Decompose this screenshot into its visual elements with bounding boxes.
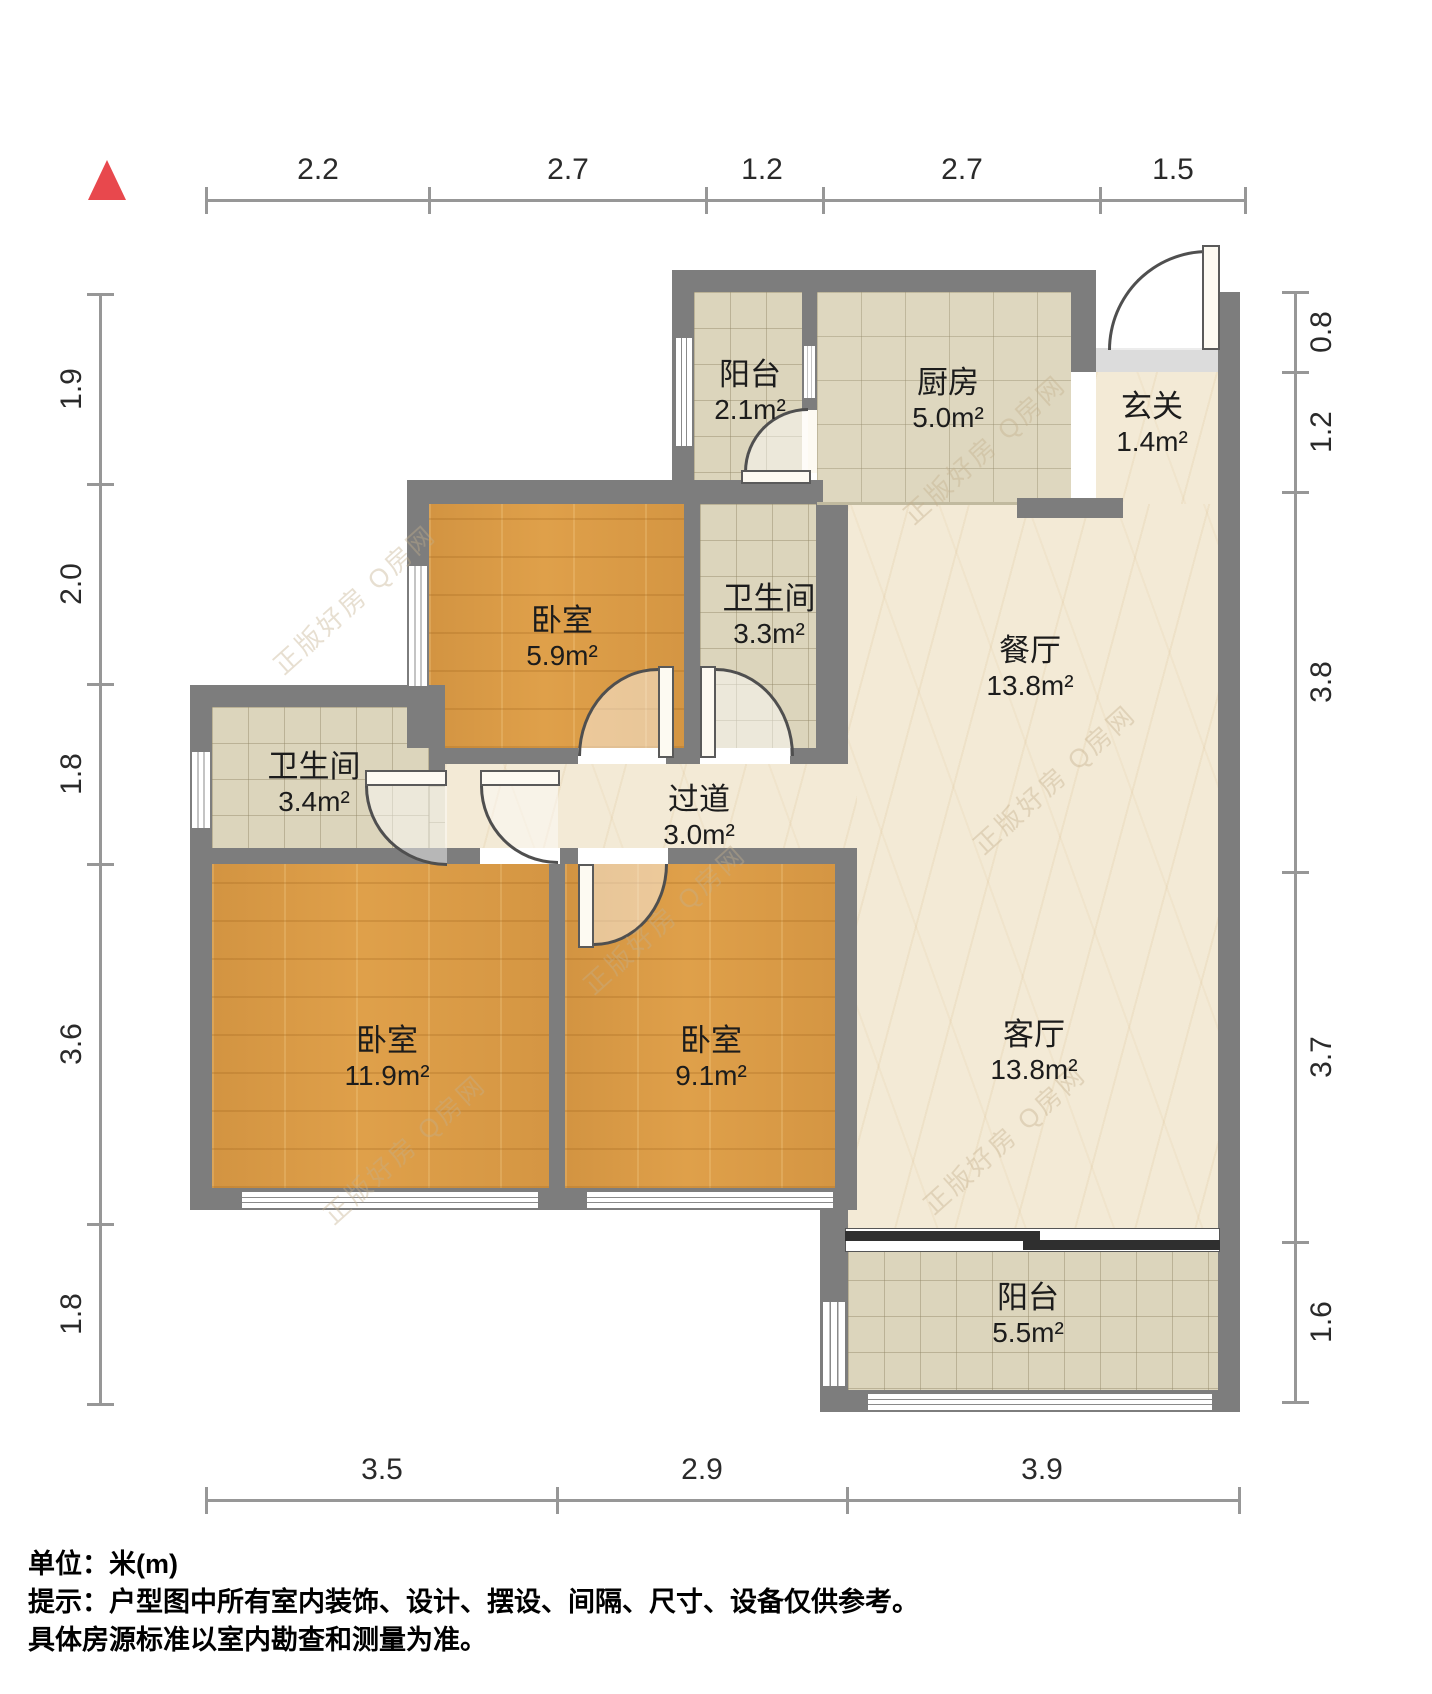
room-label-bath-34: 卫生间 3.4m² bbox=[268, 749, 361, 819]
wall bbox=[672, 270, 1096, 292]
bedroom-mid-door-leaf bbox=[578, 864, 594, 948]
bedroom-large-door-arc bbox=[480, 786, 558, 864]
dim-tick bbox=[1282, 1241, 1309, 1244]
dim-label: 3.5 bbox=[361, 1453, 403, 1487]
room-name: 厨房 bbox=[912, 365, 984, 401]
room-area: 9.1m² bbox=[675, 1059, 747, 1093]
dim-label: 3.9 bbox=[1021, 1453, 1063, 1487]
dim-label: 1.2 bbox=[741, 153, 783, 187]
dim-label: 3.7 bbox=[1305, 1036, 1339, 1078]
window bbox=[190, 750, 212, 830]
dim-label: 2.7 bbox=[941, 153, 983, 187]
room-name: 阳台 bbox=[992, 1280, 1064, 1316]
dim-tick bbox=[205, 187, 208, 214]
room-label-bedroom-large: 卧室 11.9m² bbox=[344, 1023, 429, 1093]
room-name: 餐厅 bbox=[986, 633, 1073, 669]
wall bbox=[684, 504, 700, 748]
entry-door-leaf bbox=[1202, 245, 1220, 350]
room-area: 5.0m² bbox=[912, 401, 984, 435]
dim-label: 3.6 bbox=[55, 1023, 89, 1065]
room-area: 5.5m² bbox=[992, 1316, 1064, 1350]
floorplan-page: 正版好房 Q房网 正版好房 Q房网 正版好房 Q房网 正版好房 Q房网 正版好房… bbox=[0, 0, 1432, 1694]
window bbox=[407, 564, 429, 688]
room-area: 11.9m² bbox=[344, 1059, 429, 1093]
north-arrow-icon bbox=[88, 160, 126, 200]
dim-tick bbox=[846, 1487, 849, 1514]
window bbox=[821, 1300, 847, 1388]
room-area: 1.4m² bbox=[1116, 425, 1188, 459]
dim-tick bbox=[1282, 1401, 1309, 1404]
room-label-bath-33: 卫生间 3.3m² bbox=[723, 581, 816, 651]
room-area: 2.1m² bbox=[714, 393, 786, 427]
room-area: 3.0m² bbox=[663, 818, 735, 852]
dim-label: 2.7 bbox=[547, 153, 589, 187]
room-area: 13.8m² bbox=[990, 1053, 1077, 1087]
dim-tick bbox=[87, 1223, 114, 1226]
dim-label: 1.8 bbox=[55, 1293, 89, 1335]
dim-line-right bbox=[1294, 292, 1297, 1402]
dim-tick bbox=[1238, 1487, 1241, 1514]
room-name: 客厅 bbox=[990, 1017, 1077, 1053]
dim-label: 1.5 bbox=[1152, 153, 1194, 187]
wall bbox=[835, 864, 857, 1188]
wall bbox=[802, 292, 817, 344]
wall bbox=[816, 504, 848, 764]
dim-label: 2.9 bbox=[681, 1453, 723, 1487]
window bbox=[866, 1392, 1214, 1412]
dim-tick bbox=[87, 683, 114, 686]
room-name: 玄关 bbox=[1116, 389, 1188, 425]
dim-label: 1.2 bbox=[1305, 411, 1339, 453]
dim-label: 1.8 bbox=[55, 753, 89, 795]
room-name: 卧室 bbox=[344, 1023, 429, 1059]
wall bbox=[190, 685, 445, 707]
wall bbox=[1017, 498, 1123, 518]
room-label-dining: 餐厅 13.8m² bbox=[986, 633, 1073, 703]
dim-label: 0.8 bbox=[1305, 311, 1339, 353]
dim-label: 2.0 bbox=[55, 563, 89, 605]
wall bbox=[1071, 270, 1096, 372]
bath-33-door-leaf bbox=[700, 666, 716, 758]
dim-tick bbox=[1282, 491, 1309, 494]
sliding-door-panel bbox=[1023, 1240, 1220, 1250]
dim-tick bbox=[87, 483, 114, 486]
dim-tick bbox=[822, 187, 825, 214]
dim-label: 2.2 bbox=[297, 153, 339, 187]
window bbox=[585, 1190, 835, 1210]
room-label-balcony-top: 阳台 2.1m² bbox=[714, 357, 786, 427]
dim-tick bbox=[1282, 371, 1309, 374]
room-label-kitchen: 厨房 5.0m² bbox=[912, 365, 984, 435]
window bbox=[802, 344, 817, 400]
dim-tick bbox=[556, 1487, 559, 1514]
dim-label: 1.9 bbox=[55, 368, 89, 410]
room-name: 阳台 bbox=[714, 357, 786, 393]
footer-unit-note: 单位：米(m) bbox=[28, 1542, 178, 1581]
dim-tick bbox=[428, 187, 431, 214]
room-area: 13.8m² bbox=[986, 669, 1073, 703]
dim-tick bbox=[87, 293, 114, 296]
bath-34-door-leaf bbox=[365, 770, 447, 786]
wall bbox=[1218, 292, 1240, 1412]
dim-tick bbox=[1099, 187, 1102, 214]
wall bbox=[429, 748, 578, 764]
room-area: 3.3m² bbox=[723, 617, 816, 651]
room-name: 卧室 bbox=[675, 1023, 747, 1059]
room-area: 5.9m² bbox=[526, 639, 598, 673]
room-label-bedroom-mid: 卧室 9.1m² bbox=[675, 1023, 747, 1093]
room-label-hallway: 过道 3.0m² bbox=[663, 782, 735, 852]
room-name: 过道 bbox=[663, 782, 735, 818]
window bbox=[674, 336, 694, 448]
footer-disclaimer-line2: 具体房源标准以室内勘查和测量为准。 bbox=[28, 1618, 487, 1657]
room-name: 卧室 bbox=[526, 603, 598, 639]
dim-label: 3.8 bbox=[1305, 661, 1339, 703]
room-label-balcony-bottom: 阳台 5.5m² bbox=[992, 1280, 1064, 1350]
footer-disclaimer-line1: 提示：户型图中所有室内装饰、设计、摆设、间隔、尺寸、设备仅供参考。 bbox=[28, 1580, 919, 1619]
dim-line-bottom bbox=[206, 1499, 1240, 1502]
wall bbox=[549, 864, 565, 1188]
entry-threshold bbox=[1096, 348, 1218, 372]
dim-tick bbox=[1282, 871, 1309, 874]
room-label-bedroom-small: 卧室 5.9m² bbox=[526, 603, 598, 673]
dim-line-top bbox=[206, 199, 1246, 202]
room-label-entry: 玄关 1.4m² bbox=[1116, 389, 1188, 459]
wall bbox=[560, 848, 578, 864]
dim-tick bbox=[205, 1487, 208, 1514]
bedroom-small-door-leaf bbox=[658, 666, 674, 758]
sliding-door-panel bbox=[845, 1231, 1040, 1241]
entry-door-arc bbox=[1108, 250, 1208, 350]
dim-line-left bbox=[99, 294, 102, 1404]
dim-tick bbox=[705, 187, 708, 214]
dim-tick bbox=[87, 863, 114, 866]
dim-tick bbox=[1282, 291, 1309, 294]
room-area: 3.4m² bbox=[268, 785, 361, 819]
room-label-living: 客厅 13.8m² bbox=[990, 1017, 1077, 1087]
bedroom-large-door-leaf bbox=[480, 770, 560, 786]
room-name: 卫生间 bbox=[268, 749, 361, 785]
dim-label: 1.6 bbox=[1305, 1301, 1339, 1343]
dim-tick bbox=[87, 1403, 114, 1406]
balcony-door-leaf bbox=[741, 470, 811, 484]
dim-tick bbox=[1244, 187, 1247, 214]
room-name: 卫生间 bbox=[723, 581, 816, 617]
window bbox=[240, 1190, 540, 1210]
